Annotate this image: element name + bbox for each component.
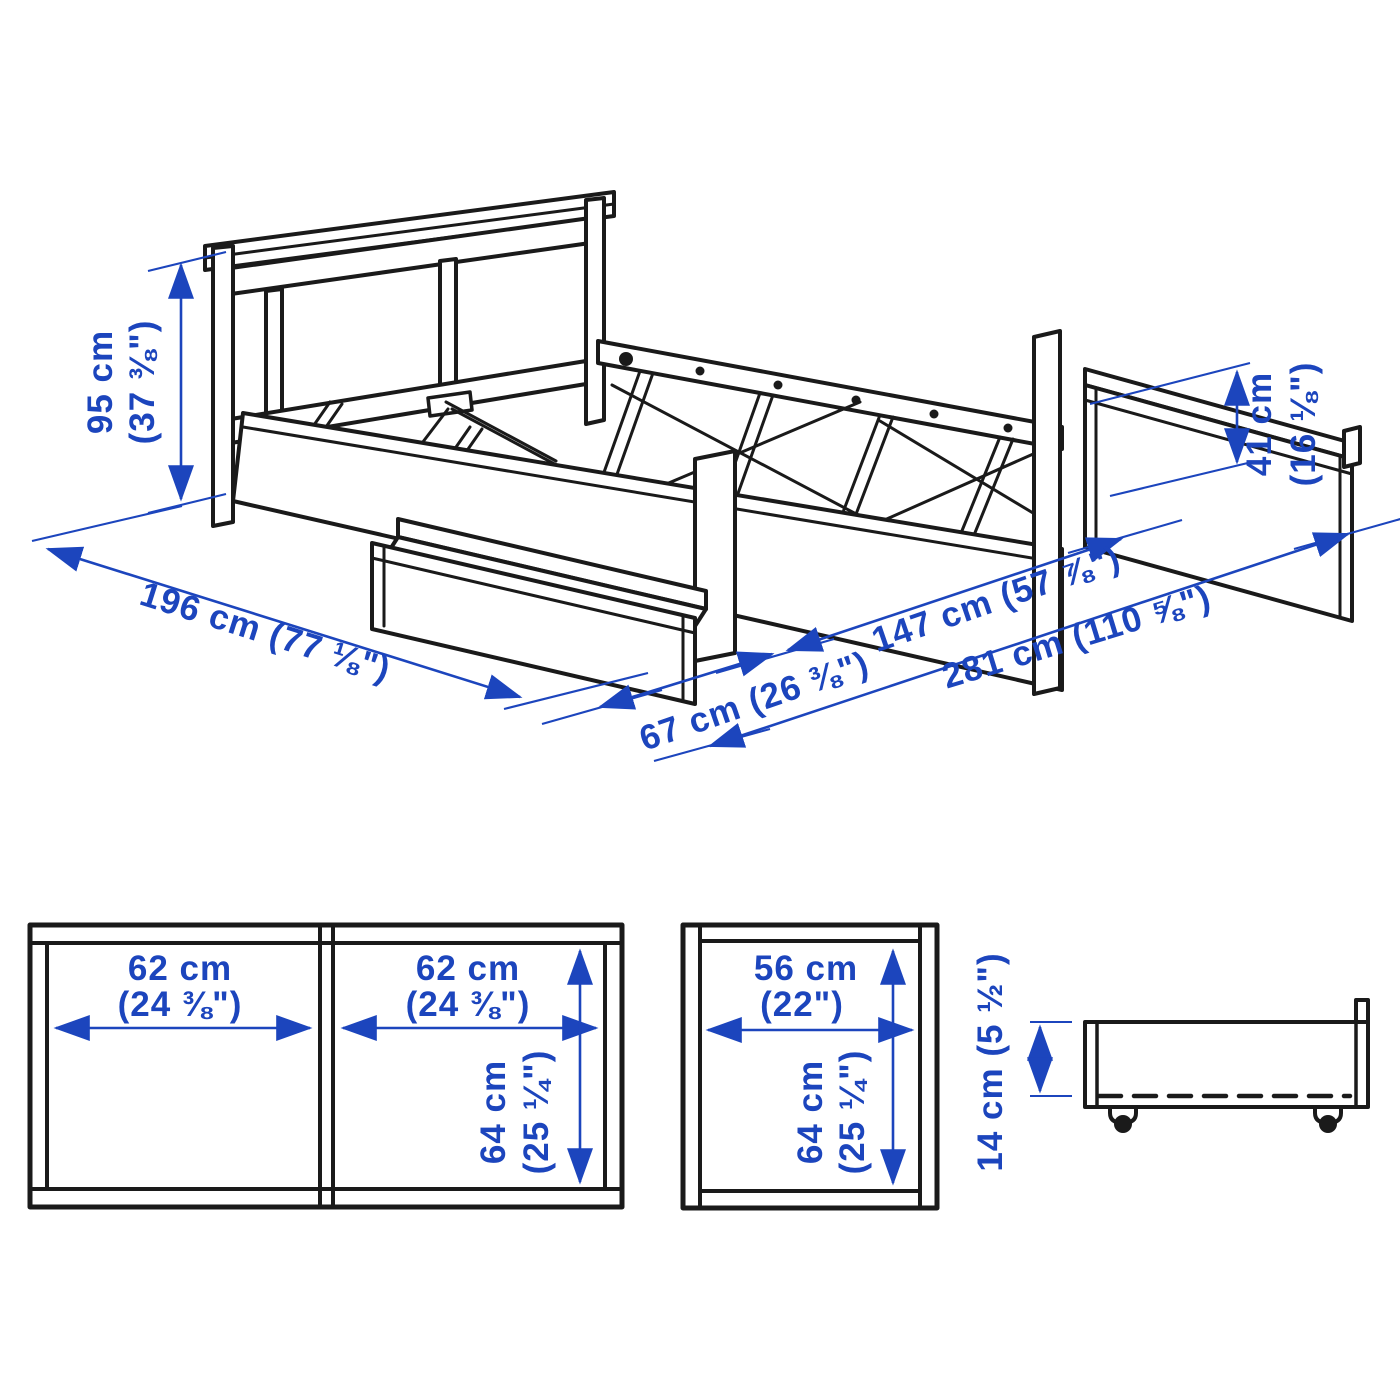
dim-label-left-62cm-inches: (24 ⅜") <box>118 985 243 1024</box>
dim-label-left-62cm: 62 cm <box>128 949 232 988</box>
dim-label-64cm-inches: (25 ¼") <box>517 1050 556 1175</box>
dim-label-right-62cm: 62 cm <box>416 949 520 988</box>
storage-box-top-view: 62 cm (24 ⅜") 62 cm (24 ⅜") 64 cm (25 ¼"… <box>30 925 622 1207</box>
dim-label-95cm-inches: (37 ⅜") <box>123 320 162 445</box>
caster-left <box>1110 1107 1136 1133</box>
dim-label-41cm: 41 cm <box>1240 372 1279 476</box>
dim-label-95cm: 95 cm <box>81 330 120 434</box>
dim-label-box-64cm: 64 cm <box>791 1060 830 1164</box>
dim-label-56cm-inches: (22") <box>760 985 844 1024</box>
dim-label-right-62cm-inches: (24 ⅜") <box>406 985 531 1024</box>
dim-label-64cm: 64 cm <box>474 1060 513 1164</box>
dim-label-box-64cm-inches: (25 ¼") <box>833 1050 872 1175</box>
dim-label-196cm: 196 cm (77 ⅛") <box>136 574 396 689</box>
single-box-top-view: 56 cm (22") 64 cm (25 ¼") <box>683 925 937 1208</box>
dimension-diagram: 95 cm (37 ⅜") 41 cm (16 ⅛") 196 cm (77 ⅛… <box>0 0 1400 1400</box>
dim-drawer-height: 14 cm (5 ½") <box>971 952 1072 1171</box>
caster-right <box>1315 1107 1341 1133</box>
metal-side-rail <box>598 341 1062 449</box>
bed-frame-drawing <box>205 192 1360 704</box>
dim-label-14cm: 14 cm (5 ½") <box>971 952 1010 1171</box>
drawer-side-view: 14 cm (5 ½") <box>971 952 1368 1171</box>
dim-label-41cm-inches: (16 ⅛") <box>1284 362 1323 487</box>
dim-headboard-height: 95 cm (37 ⅜") <box>81 252 226 513</box>
dim-label-56cm: 56 cm <box>754 949 858 988</box>
